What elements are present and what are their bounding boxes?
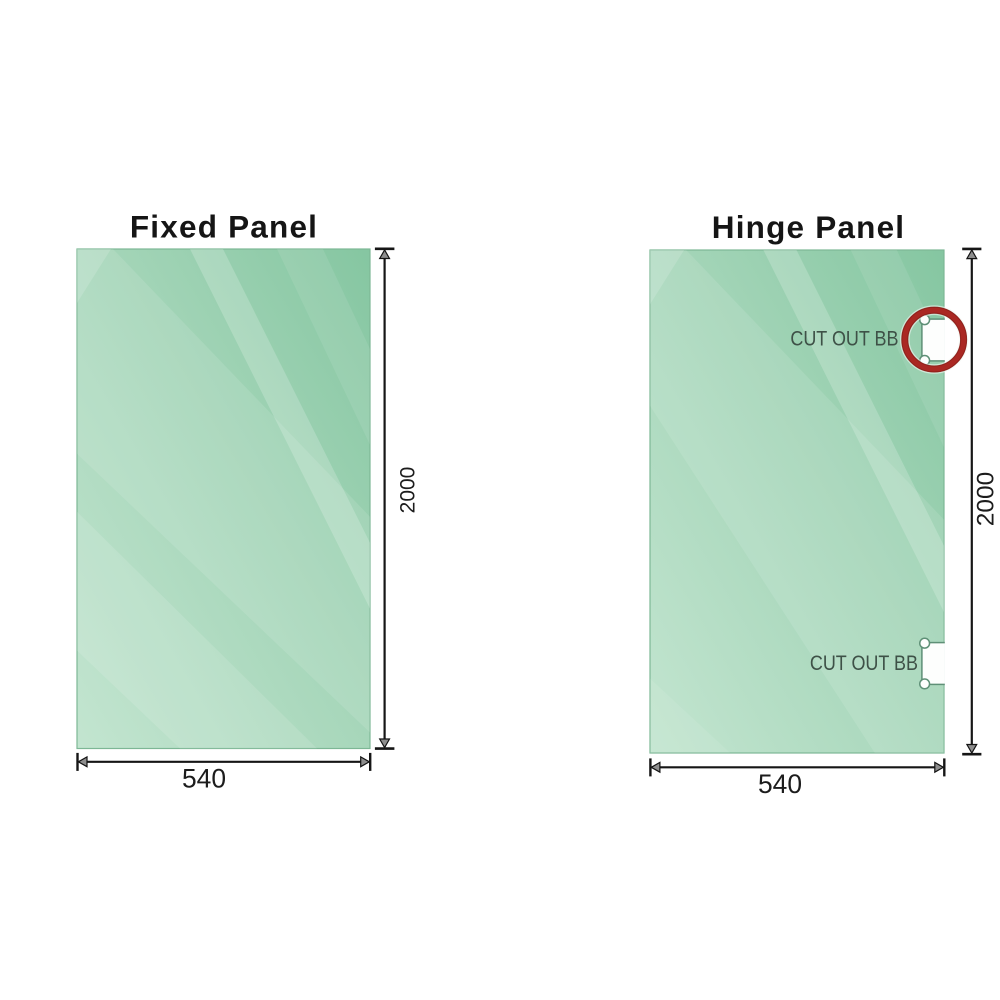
svg-text:2000: 2000 xyxy=(972,472,999,527)
svg-text:540: 540 xyxy=(758,769,802,799)
svg-text:Hinge Panel: Hinge Panel xyxy=(712,209,906,245)
svg-text:2000: 2000 xyxy=(396,467,419,514)
svg-text:Fixed Panel: Fixed Panel xyxy=(130,209,318,245)
svg-text:540: 540 xyxy=(182,764,226,794)
svg-text:CUT OUT BB: CUT OUT BB xyxy=(790,327,898,351)
svg-text:CUT OUT BB: CUT OUT BB xyxy=(810,651,918,675)
